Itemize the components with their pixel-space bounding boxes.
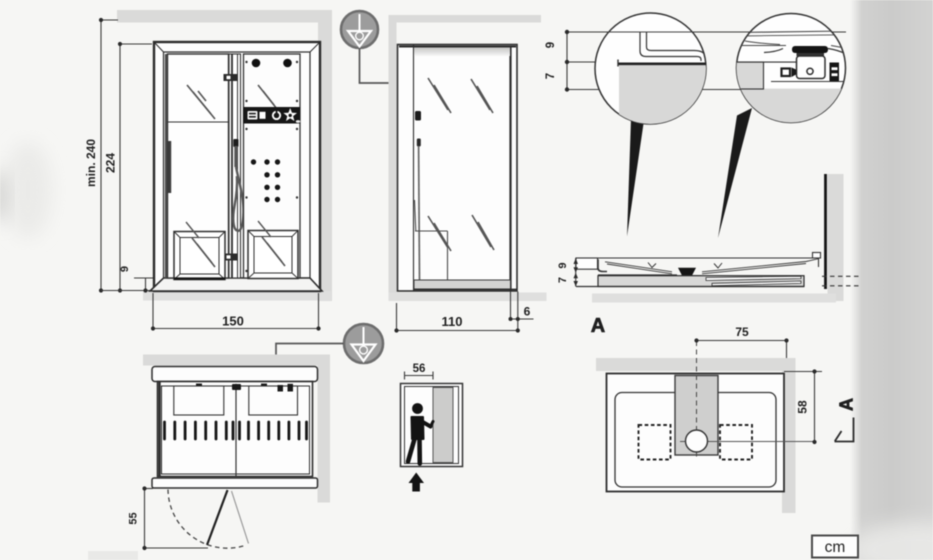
svg-text:7: 7 bbox=[545, 73, 557, 79]
svg-text:min. 240: min. 240 bbox=[84, 139, 98, 187]
svg-text:6: 6 bbox=[524, 305, 531, 319]
svg-text:7: 7 bbox=[557, 277, 569, 283]
svg-text:75: 75 bbox=[735, 325, 749, 339]
svg-text:55: 55 bbox=[128, 512, 140, 524]
svg-text:9: 9 bbox=[557, 262, 569, 268]
svg-text:56: 56 bbox=[413, 363, 426, 375]
svg-text:9: 9 bbox=[545, 42, 557, 48]
svg-text:224: 224 bbox=[104, 153, 118, 173]
svg-text:A: A bbox=[837, 398, 857, 411]
svg-text:150: 150 bbox=[222, 314, 244, 329]
svg-text:9: 9 bbox=[119, 266, 131, 272]
svg-text:A: A bbox=[591, 315, 605, 337]
svg-text:cm: cm bbox=[825, 539, 846, 556]
svg-text:110: 110 bbox=[442, 314, 463, 329]
svg-text:58: 58 bbox=[796, 400, 810, 414]
